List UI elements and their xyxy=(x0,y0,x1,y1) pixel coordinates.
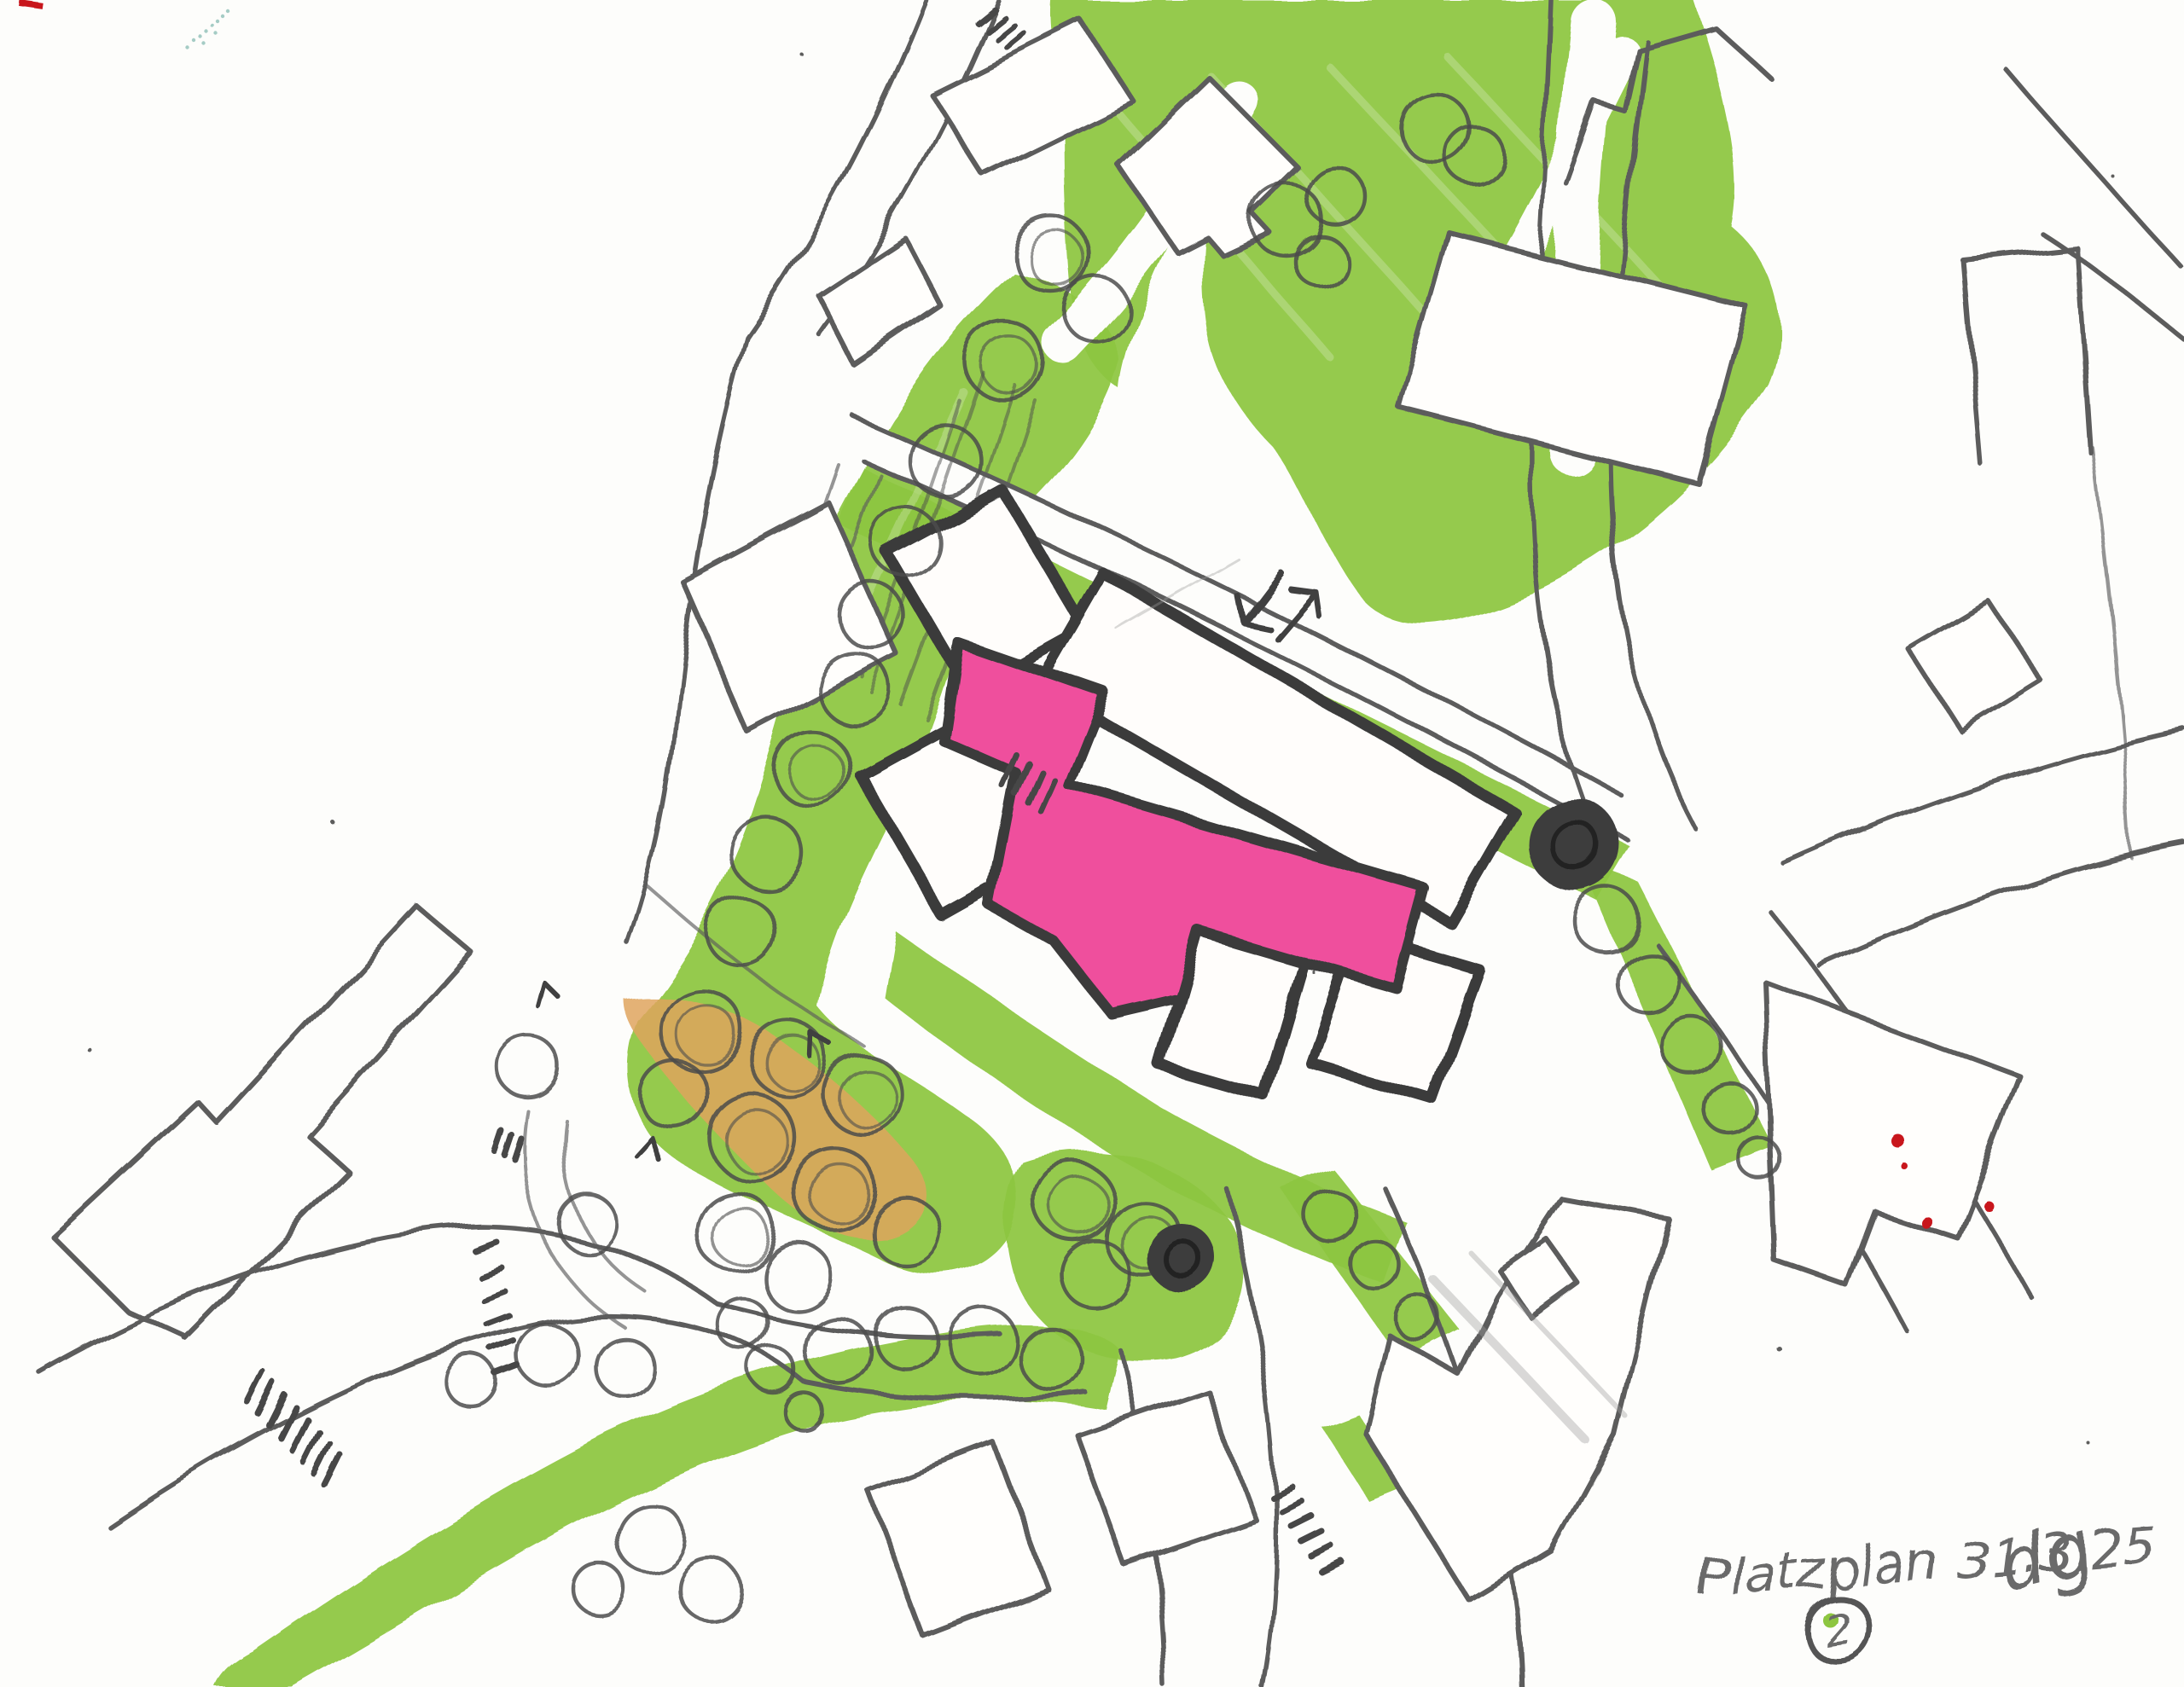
tree-canopy-icon xyxy=(497,1035,558,1097)
teal-speck xyxy=(203,43,206,46)
hatch-tick xyxy=(503,1133,510,1154)
sheet-number: 2 xyxy=(1820,1603,1855,1657)
context-building xyxy=(1909,602,2041,730)
red-speck xyxy=(1984,1201,1994,1211)
hatch-tick xyxy=(1320,1560,1340,1570)
hatch-tick xyxy=(258,1383,274,1414)
road-line xyxy=(1819,843,2184,965)
pencil-speck xyxy=(333,822,337,826)
context-building xyxy=(1764,981,2020,1286)
tree-canopy-icon xyxy=(595,1338,653,1396)
large-tree-icon xyxy=(1528,798,1620,890)
hatch-tick xyxy=(1310,1545,1331,1556)
pencil-speck xyxy=(2111,174,2114,177)
road-line xyxy=(38,1226,718,1371)
road-line xyxy=(2092,447,2131,857)
teal-speck xyxy=(193,39,196,43)
tree-canopy-icon xyxy=(764,1243,832,1311)
hatch-tick xyxy=(314,1443,329,1474)
hatch-tick xyxy=(474,1242,497,1250)
teal-speck xyxy=(215,32,218,36)
pencil-speck xyxy=(2087,1441,2090,1445)
pencil-speck xyxy=(1312,971,1316,974)
context-building xyxy=(1077,1390,1256,1565)
pencil-speck xyxy=(800,53,804,56)
context-building xyxy=(868,1443,1048,1636)
handwritten-annotation: Platzplan 31.3.25 dg 2 xyxy=(1696,1505,2159,1661)
hatch-tick xyxy=(496,1365,518,1374)
teal-speck xyxy=(222,15,225,19)
hatch-tick xyxy=(514,1138,520,1158)
hatch-tick xyxy=(997,26,1014,39)
red-speck xyxy=(1902,1163,1908,1170)
hatch-tick xyxy=(247,1371,263,1402)
hatch-tick xyxy=(325,1455,340,1486)
pencil-speck xyxy=(87,1047,91,1052)
tree-canopy-icon xyxy=(445,1355,497,1406)
plaza-arc xyxy=(563,1119,645,1291)
plaza-arc xyxy=(524,1110,624,1327)
hatch-tick xyxy=(1292,1516,1312,1527)
teal-speck xyxy=(206,31,209,34)
hatch-tick xyxy=(303,1431,318,1462)
large-tree-icon xyxy=(1147,1224,1216,1292)
tree-canopy-icon xyxy=(696,1192,775,1271)
hatch-tick xyxy=(292,1419,307,1450)
tree-canopy-inner xyxy=(712,1208,769,1264)
hatch-tick xyxy=(479,1267,501,1275)
context-building xyxy=(817,237,940,364)
hatch-tick xyxy=(493,1129,500,1150)
hatch-tick xyxy=(491,1341,514,1349)
teal-speck xyxy=(217,20,220,24)
site-plan-sheet: Platzplan 31.3.25 dg 2 xyxy=(0,0,2184,1687)
context-building-outline xyxy=(1962,247,2090,462)
hatch-tick xyxy=(483,1291,505,1300)
hatch-tick xyxy=(1008,34,1025,48)
chevron-mark-icon xyxy=(531,979,560,1005)
red-dash xyxy=(21,3,46,12)
context-building-outline xyxy=(53,1237,186,1337)
red-speck xyxy=(1920,1215,1931,1227)
red-speck xyxy=(1891,1134,1905,1148)
hatch-tick xyxy=(487,1316,509,1325)
teal-speck xyxy=(186,46,189,49)
green-site-east-strip xyxy=(1580,860,1773,1170)
context-building-outline xyxy=(186,906,471,1339)
pencil-speck xyxy=(1777,1347,1782,1352)
tree-canopy-icon xyxy=(573,1563,624,1615)
tree-canopy-icon xyxy=(517,1325,578,1386)
hatch-tick xyxy=(1301,1531,1321,1541)
tree-canopy-icon xyxy=(616,1504,684,1572)
tree-canopy-icon xyxy=(679,1558,741,1620)
site-plan-canvas: Platzplan 31.3.25 dg 2 xyxy=(0,0,2184,1687)
teal-speck xyxy=(227,10,230,14)
teal-speck xyxy=(200,36,203,39)
teal-speck xyxy=(212,25,215,28)
hatch-tick xyxy=(1282,1502,1303,1512)
road-line xyxy=(2003,67,2181,266)
teal-specks xyxy=(186,10,230,49)
